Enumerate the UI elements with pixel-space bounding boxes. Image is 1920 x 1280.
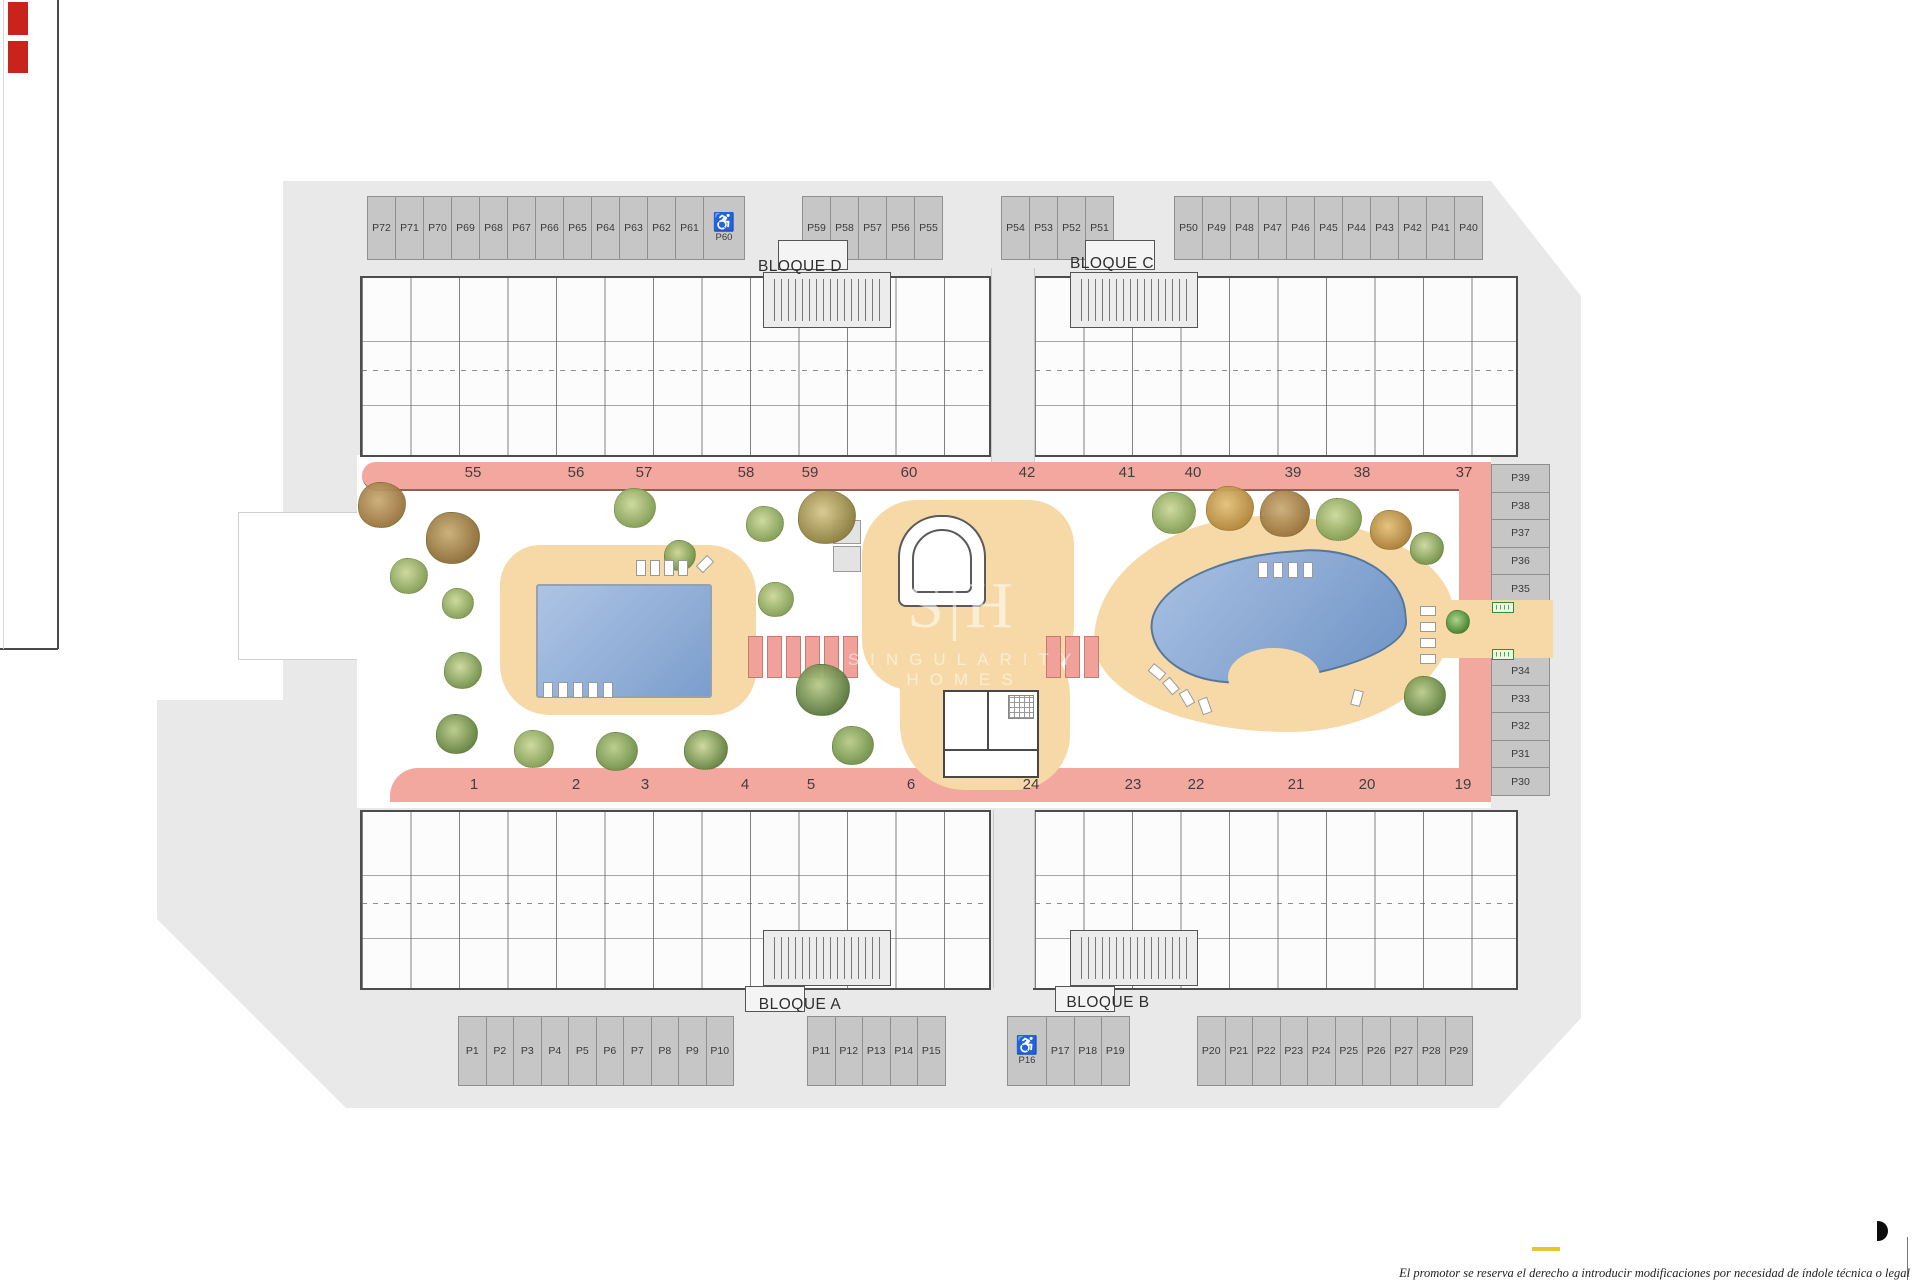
parking-stall: P52 <box>1057 196 1086 260</box>
unit-number: 60 <box>901 464 918 481</box>
unit-number: 5 <box>807 776 815 793</box>
parking-stall: P61 <box>675 196 704 260</box>
lounger-icon <box>1303 562 1313 578</box>
binding-mark-icon <box>1877 1221 1888 1241</box>
parking-stall: P38 <box>1491 492 1550 521</box>
parking-stall: P22 <box>1252 1016 1281 1086</box>
lounger-icon <box>1258 562 1268 578</box>
east-entrance <box>1427 600 1553 658</box>
parking-stall: P5 <box>568 1016 597 1086</box>
parking-stall: P71 <box>395 196 424 260</box>
parking-stall: P19 <box>1101 1016 1130 1086</box>
parking-stall: P27 <box>1390 1016 1419 1086</box>
parking-column-right-upper: P39P38P37P36P35 <box>1491 465 1550 603</box>
parking-stall: P31 <box>1491 740 1550 769</box>
side-entrance <box>238 512 360 660</box>
unit-number: 22 <box>1188 776 1205 793</box>
sheet-border-line <box>3 0 4 649</box>
parking-stall: P55 <box>914 196 943 260</box>
unit-number: 39 <box>1285 464 1302 481</box>
block-label-b: BLOQUE B <box>1066 994 1149 1012</box>
parking-stall: P57 <box>858 196 887 260</box>
parking-stall: P10 <box>706 1016 735 1086</box>
lounger-icon <box>1420 654 1436 664</box>
parking-row-bottom-mid: P11P12P13P14P15 <box>808 1016 946 1086</box>
lounger-icon <box>664 560 674 576</box>
unit-number: 20 <box>1359 776 1376 793</box>
disclaimer-text: El promotor se reserva el derecho a intr… <box>1010 1266 1910 1280</box>
parking-row-bottom-mid-2: ♿ P16 P17P18P19 <box>1008 1016 1130 1086</box>
parking-stall: P37 <box>1491 519 1550 548</box>
parking-stall: P40 <box>1454 196 1483 260</box>
parking-stall: P62 <box>647 196 676 260</box>
parking-stall-accessible: ♿ P60 <box>703 196 745 260</box>
lounger-icon <box>603 682 613 698</box>
corner-mark-icon <box>8 2 28 35</box>
wheelchair-icon: ♿ <box>713 213 735 232</box>
parking-stall: P56 <box>886 196 915 260</box>
parking-stall: P21 <box>1225 1016 1254 1086</box>
parking-stall: P3 <box>513 1016 542 1086</box>
parking-stall: P8 <box>651 1016 680 1086</box>
wheelchair-icon: ♿ <box>1016 1036 1038 1055</box>
unit-number: 24 <box>1023 776 1040 793</box>
pool-deck-right <box>1228 648 1320 706</box>
parking-stall: P70 <box>423 196 452 260</box>
promenade-top <box>362 462 1491 491</box>
parking-stall: P46 <box>1286 196 1315 260</box>
lounger-icon <box>678 560 688 576</box>
parking-stall: P23 <box>1280 1016 1309 1086</box>
unit-number: 3 <box>641 776 649 793</box>
parking-stall: P68 <box>479 196 508 260</box>
entrance-tag <box>1492 649 1514 660</box>
lounger-icon <box>636 560 646 576</box>
lounger-icon <box>1288 562 1298 578</box>
parking-stall: P12 <box>835 1016 864 1086</box>
parking-stall: P30 <box>1491 767 1550 796</box>
unit-number: 40 <box>1185 464 1202 481</box>
lounger-icon <box>558 682 568 698</box>
parking-stall: P25 <box>1335 1016 1364 1086</box>
entrance-tag <box>1492 602 1514 613</box>
parking-stall: P35 <box>1491 574 1550 603</box>
sheet-border-line <box>57 0 59 649</box>
lounger-icon <box>1273 562 1283 578</box>
kiosk <box>833 546 861 572</box>
unit-number: 37 <box>1456 464 1473 481</box>
parking-row-top-right: P50P49P48P47P46P45P44P43P42P41P40 <box>1175 196 1483 260</box>
paving-tile <box>748 636 763 678</box>
parking-row-bottom-left: P1P2P3P4P5P6P7P8P9P10 <box>459 1016 734 1086</box>
parking-stall: P15 <box>917 1016 946 1086</box>
parking-stall: P66 <box>535 196 564 260</box>
unit-number: 38 <box>1354 464 1371 481</box>
highlight-mark <box>1532 1247 1560 1251</box>
parking-stall: P28 <box>1417 1016 1446 1086</box>
stair-core <box>1070 930 1198 986</box>
parking-stall: P39 <box>1491 464 1550 493</box>
parking-stall: P49 <box>1202 196 1231 260</box>
block-label-d: BLOQUE D <box>758 258 842 276</box>
lounger-icon <box>650 560 660 576</box>
parking-stall: P33 <box>1491 685 1550 714</box>
lounger-icon <box>1420 606 1436 616</box>
unit-number: 23 <box>1125 776 1142 793</box>
parking-stall: P72 <box>367 196 396 260</box>
watermark-monogram: S|H <box>880 568 1044 644</box>
parking-stall: P7 <box>623 1016 652 1086</box>
parking-stall: P20 <box>1197 1016 1226 1086</box>
parking-stall: P63 <box>619 196 648 260</box>
unit-number: 2 <box>572 776 580 793</box>
parking-stall: P50 <box>1174 196 1203 260</box>
building-block-a <box>360 810 991 990</box>
passage <box>991 268 1035 462</box>
block-label-c: BLOQUE C <box>1070 255 1154 273</box>
unit-number: 41 <box>1119 464 1136 481</box>
parking-row-bottom-right: P20P21P22P23P24P25P26P27P28P29 <box>1198 1016 1473 1086</box>
stair-grid-icon <box>1008 695 1034 719</box>
parking-stall: P32 <box>1491 712 1550 741</box>
parking-stall: P64 <box>591 196 620 260</box>
parking-stall: P9 <box>678 1016 707 1086</box>
parking-stall: P1 <box>458 1016 487 1086</box>
unit-number: 19 <box>1455 776 1472 793</box>
stair-core <box>1070 272 1198 328</box>
parking-stall: P26 <box>1362 1016 1391 1086</box>
parking-stall-accessible: ♿ P16 <box>1007 1016 1047 1086</box>
building-block-d <box>360 276 991 457</box>
paving-tile <box>767 636 782 678</box>
rectangular-pool <box>536 584 712 698</box>
parking-stall: P2 <box>486 1016 515 1086</box>
lounger-icon <box>1420 638 1436 648</box>
parking-stall: P43 <box>1370 196 1399 260</box>
parking-stall: P36 <box>1491 547 1550 576</box>
lounger-icon <box>573 682 583 698</box>
parking-stall: P14 <box>890 1016 919 1086</box>
parking-stall: P69 <box>451 196 480 260</box>
unit-number: 42 <box>1019 464 1036 481</box>
corner-mark-icon <box>8 41 28 73</box>
sheet-border-line <box>0 648 58 650</box>
unit-number: 1 <box>470 776 478 793</box>
parking-stall: P34 <box>1491 657 1550 686</box>
passage <box>993 810 1035 988</box>
parking-stall: P47 <box>1258 196 1287 260</box>
unit-number: 58 <box>738 464 755 481</box>
stair-core <box>763 930 891 986</box>
parking-stall: P65 <box>563 196 592 260</box>
parking-stall: P29 <box>1445 1016 1474 1086</box>
unit-number: 21 <box>1288 776 1305 793</box>
lounger-icon <box>1420 622 1436 632</box>
stair-core <box>763 272 891 328</box>
parking-column-right-lower: P34P33P32P31P30 <box>1491 658 1550 796</box>
block-label-a: BLOQUE A <box>759 996 841 1014</box>
unit-number: 4 <box>741 776 749 793</box>
parking-stall: P45 <box>1314 196 1343 260</box>
parking-stall: P24 <box>1307 1016 1336 1086</box>
parking-stall: P67 <box>507 196 536 260</box>
parking-stall: P41 <box>1426 196 1455 260</box>
parking-stall: P17 <box>1046 1016 1075 1086</box>
unit-number: 59 <box>802 464 819 481</box>
parking-stall: P4 <box>541 1016 570 1086</box>
unit-number: 57 <box>636 464 653 481</box>
site-plan: El promotor se reserva el derecho a intr… <box>0 0 1920 1280</box>
parking-row-top-left: P72P71P70P69P68P67P66P65P64P63P62P61 ♿ P… <box>368 196 745 260</box>
pool-house <box>943 690 1039 778</box>
parking-stall: P53 <box>1029 196 1058 260</box>
parking-stall: P6 <box>596 1016 625 1086</box>
parking-stall: P18 <box>1074 1016 1103 1086</box>
unit-number: 6 <box>907 776 915 793</box>
lounger-icon <box>588 682 598 698</box>
parking-stall: P44 <box>1342 196 1371 260</box>
parking-stall: P11 <box>807 1016 836 1086</box>
unit-number: 55 <box>465 464 482 481</box>
lounger-icon <box>543 682 553 698</box>
parking-stall: P48 <box>1230 196 1259 260</box>
parking-stall: P54 <box>1001 196 1030 260</box>
parking-stall: P13 <box>862 1016 891 1086</box>
parking-stall: P42 <box>1398 196 1427 260</box>
unit-number: 56 <box>568 464 585 481</box>
watermark-name: SINGULARITY HOMES <box>790 650 1140 690</box>
